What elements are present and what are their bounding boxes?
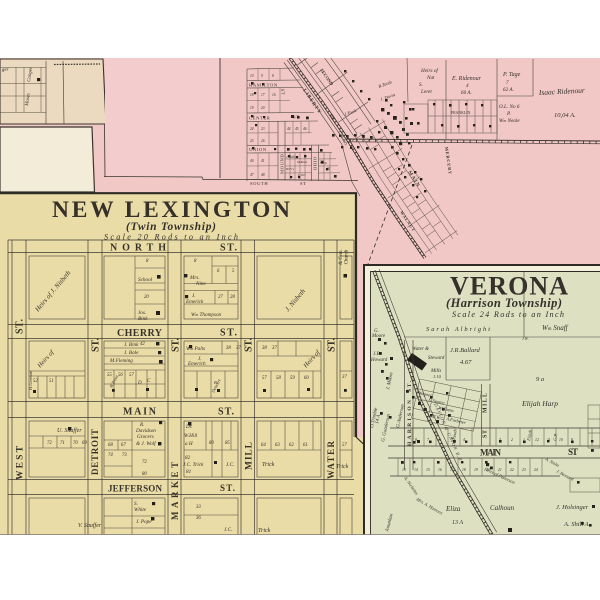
svg-text:48: 48 bbox=[261, 173, 265, 177]
svg-text:J. Holsinger: J. Holsinger bbox=[556, 504, 589, 511]
svg-text:H.Fry: H.Fry bbox=[285, 167, 295, 171]
svg-text:Wm Neale: Wm Neale bbox=[499, 118, 520, 124]
svg-text:38: 38 bbox=[226, 346, 231, 351]
svg-text:Wm Snaff: Wm Snaff bbox=[542, 324, 569, 332]
svg-text:A. Shill A: A. Shill A bbox=[563, 521, 589, 528]
svg-text:Trick: Trick bbox=[336, 464, 349, 470]
svg-text:18: 18 bbox=[462, 468, 466, 472]
svg-text:15: 15 bbox=[426, 468, 430, 472]
svg-text:a H: a H bbox=[185, 441, 193, 447]
svg-text:37: 37 bbox=[342, 375, 347, 380]
svg-text:MAIN: MAIN bbox=[480, 448, 502, 458]
svg-text:W.Hill: W.Hill bbox=[184, 433, 198, 439]
svg-text:1.10: 1.10 bbox=[433, 374, 442, 379]
svg-text:46: 46 bbox=[303, 127, 307, 131]
svg-text:51: 51 bbox=[49, 379, 54, 384]
svg-text:(Harrison Township): (Harrison Township) bbox=[446, 296, 562, 310]
svg-text:MOUND: MOUND bbox=[280, 154, 285, 174]
svg-text:14: 14 bbox=[414, 468, 418, 472]
svg-text:E. Ridenour: E. Ridenour bbox=[451, 76, 482, 82]
svg-text:D: D bbox=[137, 381, 142, 386]
svg-text:69: 69 bbox=[82, 441, 87, 446]
svg-text:Heirs of: Heirs of bbox=[420, 67, 439, 74]
svg-text:41: 41 bbox=[261, 159, 265, 163]
svg-text:36: 36 bbox=[196, 516, 201, 521]
svg-text:37: 37 bbox=[272, 346, 277, 351]
svg-text:J. Pope: J. Pope bbox=[136, 519, 152, 525]
svg-text:38: 38 bbox=[262, 346, 267, 351]
svg-text:71: 71 bbox=[60, 441, 65, 446]
svg-text:18: 18 bbox=[250, 93, 254, 97]
svg-text:23: 23 bbox=[522, 468, 526, 472]
svg-text:82: 82 bbox=[185, 455, 191, 461]
svg-text:72: 72 bbox=[142, 460, 147, 465]
svg-text:9 a: 9 a bbox=[536, 376, 544, 383]
svg-text:47: 47 bbox=[250, 173, 254, 177]
svg-text:23: 23 bbox=[261, 127, 265, 131]
svg-text:ST: ST bbox=[483, 430, 489, 438]
svg-text:57: 57 bbox=[129, 373, 134, 378]
svg-text:26: 26 bbox=[261, 139, 265, 143]
svg-text:52: 52 bbox=[33, 379, 38, 384]
svg-text:19: 19 bbox=[250, 106, 254, 110]
svg-text:CHERRY: CHERRY bbox=[117, 328, 163, 339]
svg-text:MILL: MILL bbox=[245, 442, 255, 470]
svg-text:S.: S. bbox=[419, 82, 423, 88]
svg-text:ST.: ST. bbox=[15, 319, 26, 335]
svg-text:J.C.: J.C. bbox=[224, 527, 232, 533]
svg-text:80: 80 bbox=[209, 441, 214, 446]
svg-text:Sarah Albright: Sarah Albright bbox=[426, 326, 490, 333]
svg-text:DETROIT: DETROIT bbox=[90, 429, 100, 475]
svg-text:Leret: Leret bbox=[420, 89, 432, 95]
svg-text:56: 56 bbox=[118, 373, 123, 378]
svg-text:FRANKLIN: FRANKLIN bbox=[451, 111, 470, 115]
svg-text:9: 9 bbox=[261, 74, 263, 78]
svg-text:School: School bbox=[138, 277, 153, 283]
svg-text:Eliza: Eliza bbox=[445, 505, 461, 513]
svg-text:24: 24 bbox=[250, 127, 254, 131]
svg-text:42: 42 bbox=[140, 342, 145, 347]
svg-text:1: 1 bbox=[523, 438, 525, 442]
svg-text:16: 16 bbox=[438, 468, 442, 472]
svg-text:81: 81 bbox=[186, 469, 192, 475]
svg-text:19: 19 bbox=[474, 468, 478, 472]
svg-text:(Twin Township): (Twin Township) bbox=[126, 221, 216, 233]
svg-text:J.C. Trick: J.C. Trick bbox=[183, 462, 204, 468]
svg-text:10: 10 bbox=[250, 74, 254, 78]
svg-text:45: 45 bbox=[295, 127, 299, 131]
svg-text:57: 57 bbox=[342, 443, 347, 448]
svg-text:63: 63 bbox=[275, 443, 280, 448]
svg-text:ST.: ST. bbox=[220, 483, 235, 493]
svg-text:Water &: Water & bbox=[412, 347, 429, 352]
svg-text:11: 11 bbox=[547, 438, 551, 442]
svg-text:UNION: UNION bbox=[249, 147, 267, 152]
svg-text:ST.: ST. bbox=[220, 328, 238, 339]
svg-text:Howard: Howard bbox=[370, 358, 388, 363]
svg-text:J. Bink: J. Bink bbox=[124, 342, 139, 348]
svg-text:22: 22 bbox=[510, 468, 514, 472]
svg-text:10: 10 bbox=[559, 438, 563, 442]
svg-text:85: 85 bbox=[225, 441, 230, 446]
svg-text:8: 8 bbox=[415, 438, 417, 442]
svg-text:WATER: WATER bbox=[326, 441, 336, 480]
svg-text:73: 73 bbox=[122, 453, 127, 458]
svg-text:4: 4 bbox=[466, 82, 469, 89]
svg-text:ST.: ST. bbox=[218, 407, 235, 418]
svg-text:20: 20 bbox=[261, 106, 265, 110]
svg-text:67: 67 bbox=[121, 443, 126, 448]
svg-text:ST.: ST. bbox=[91, 338, 102, 353]
svg-text:33: 33 bbox=[196, 505, 201, 510]
svg-text:27: 27 bbox=[218, 295, 223, 300]
svg-text:57: 57 bbox=[262, 376, 267, 381]
svg-text:J.C.: J.C. bbox=[226, 462, 234, 468]
svg-text:SOUTH: SOUTH bbox=[250, 181, 268, 186]
svg-text:WEST: WEST bbox=[16, 445, 26, 480]
svg-text:J.W.: J.W. bbox=[522, 336, 529, 341]
svg-text:12: 12 bbox=[535, 438, 539, 442]
svg-text:58: 58 bbox=[276, 376, 281, 381]
svg-text:61: 61 bbox=[303, 443, 308, 448]
svg-text:J. Bale: J. Bale bbox=[124, 350, 139, 356]
svg-text:70: 70 bbox=[73, 441, 78, 446]
svg-text:55: 55 bbox=[107, 373, 112, 378]
svg-text:P. Tage: P. Tage bbox=[502, 72, 521, 78]
svg-text:P.: P. bbox=[506, 111, 511, 117]
svg-text:10,04 A.: 10,04 A. bbox=[554, 112, 576, 119]
svg-text:13: 13 bbox=[402, 468, 406, 472]
svg-text:ger: ger bbox=[2, 68, 9, 73]
svg-text:ST.: ST. bbox=[327, 338, 338, 353]
svg-text:Calhoun: Calhoun bbox=[490, 504, 515, 512]
svg-text:M.Fleming: M.Fleming bbox=[109, 358, 133, 364]
svg-text:Emerick: Emerick bbox=[185, 299, 204, 305]
svg-text:8: 8 bbox=[272, 74, 274, 78]
svg-text:80: 80 bbox=[142, 472, 147, 477]
svg-text:M.Rose: M.Rose bbox=[296, 160, 308, 164]
svg-text:& Cem.: & Cem. bbox=[339, 249, 344, 265]
svg-text:& J. Wolf: & J. Wolf bbox=[136, 440, 157, 447]
svg-text:MILL: MILL bbox=[483, 393, 489, 413]
svg-text:O.L. No 6: O.L. No 6 bbox=[499, 104, 520, 110]
svg-text:2: 2 bbox=[511, 438, 513, 442]
svg-text:44: 44 bbox=[287, 127, 291, 131]
svg-text:ST: ST bbox=[568, 447, 578, 457]
svg-text:7: 7 bbox=[506, 80, 509, 86]
svg-text:ST.: ST. bbox=[220, 243, 238, 254]
svg-text:Elijah Harp: Elijah Harp bbox=[521, 399, 558, 408]
svg-text:59: 59 bbox=[290, 376, 295, 381]
svg-text:17: 17 bbox=[261, 93, 265, 97]
svg-text:72: 72 bbox=[47, 441, 52, 446]
svg-text:J.R.Ballard: J.R.Ballard bbox=[450, 347, 480, 354]
svg-text:Nat: Nat bbox=[426, 75, 435, 81]
svg-text:Church: Church bbox=[345, 249, 350, 264]
svg-text:62: 62 bbox=[289, 443, 294, 448]
svg-text:Trick: Trick bbox=[258, 528, 271, 534]
svg-text:3: 3 bbox=[499, 438, 501, 442]
svg-text:Wm Palts: Wm Palts bbox=[186, 346, 205, 352]
svg-text:60: 60 bbox=[304, 376, 309, 381]
svg-text:13 A: 13 A bbox=[452, 520, 463, 526]
svg-text:Grocers: Grocers bbox=[137, 434, 154, 440]
svg-text:OHIO: OHIO bbox=[313, 156, 318, 170]
svg-text:ST.: ST. bbox=[171, 338, 182, 353]
svg-text:68: 68 bbox=[108, 443, 113, 448]
svg-text:20: 20 bbox=[144, 295, 149, 300]
svg-text:ST.: ST. bbox=[244, 338, 255, 353]
svg-text:9: 9 bbox=[571, 438, 573, 442]
svg-text:60 A.: 60 A. bbox=[461, 90, 472, 96]
svg-text:Steward: Steward bbox=[428, 356, 445, 361]
svg-text:V. Shaffer: V. Shaffer bbox=[78, 522, 102, 529]
svg-text:Nine: Nine bbox=[195, 281, 206, 287]
svg-text:JEFFERSON: JEFFERSON bbox=[108, 484, 163, 494]
svg-text:28: 28 bbox=[230, 295, 235, 300]
svg-text:Scale 24 Rods to an Inch: Scale 24 Rods to an Inch bbox=[452, 310, 564, 319]
svg-text:25: 25 bbox=[250, 139, 254, 143]
svg-text:White: White bbox=[134, 507, 147, 513]
svg-text:Emerich: Emerich bbox=[187, 361, 206, 367]
svg-text:16: 16 bbox=[272, 93, 276, 97]
svg-text:MAIN: MAIN bbox=[123, 407, 157, 418]
svg-text:4.67: 4.67 bbox=[460, 359, 472, 366]
svg-text:6: 6 bbox=[439, 438, 441, 442]
svg-text:74: 74 bbox=[108, 453, 113, 458]
svg-text:24: 24 bbox=[534, 468, 538, 472]
svg-text:4: 4 bbox=[463, 438, 465, 442]
svg-text:64: 64 bbox=[261, 443, 266, 448]
svg-text:Trick: Trick bbox=[262, 462, 275, 468]
svg-text:Bink: Bink bbox=[138, 316, 148, 322]
svg-text:ST: ST bbox=[300, 181, 307, 186]
svg-text:37: 37 bbox=[236, 346, 241, 351]
svg-text:40: 40 bbox=[250, 159, 254, 163]
svg-text:62 A.: 62 A. bbox=[503, 87, 514, 93]
